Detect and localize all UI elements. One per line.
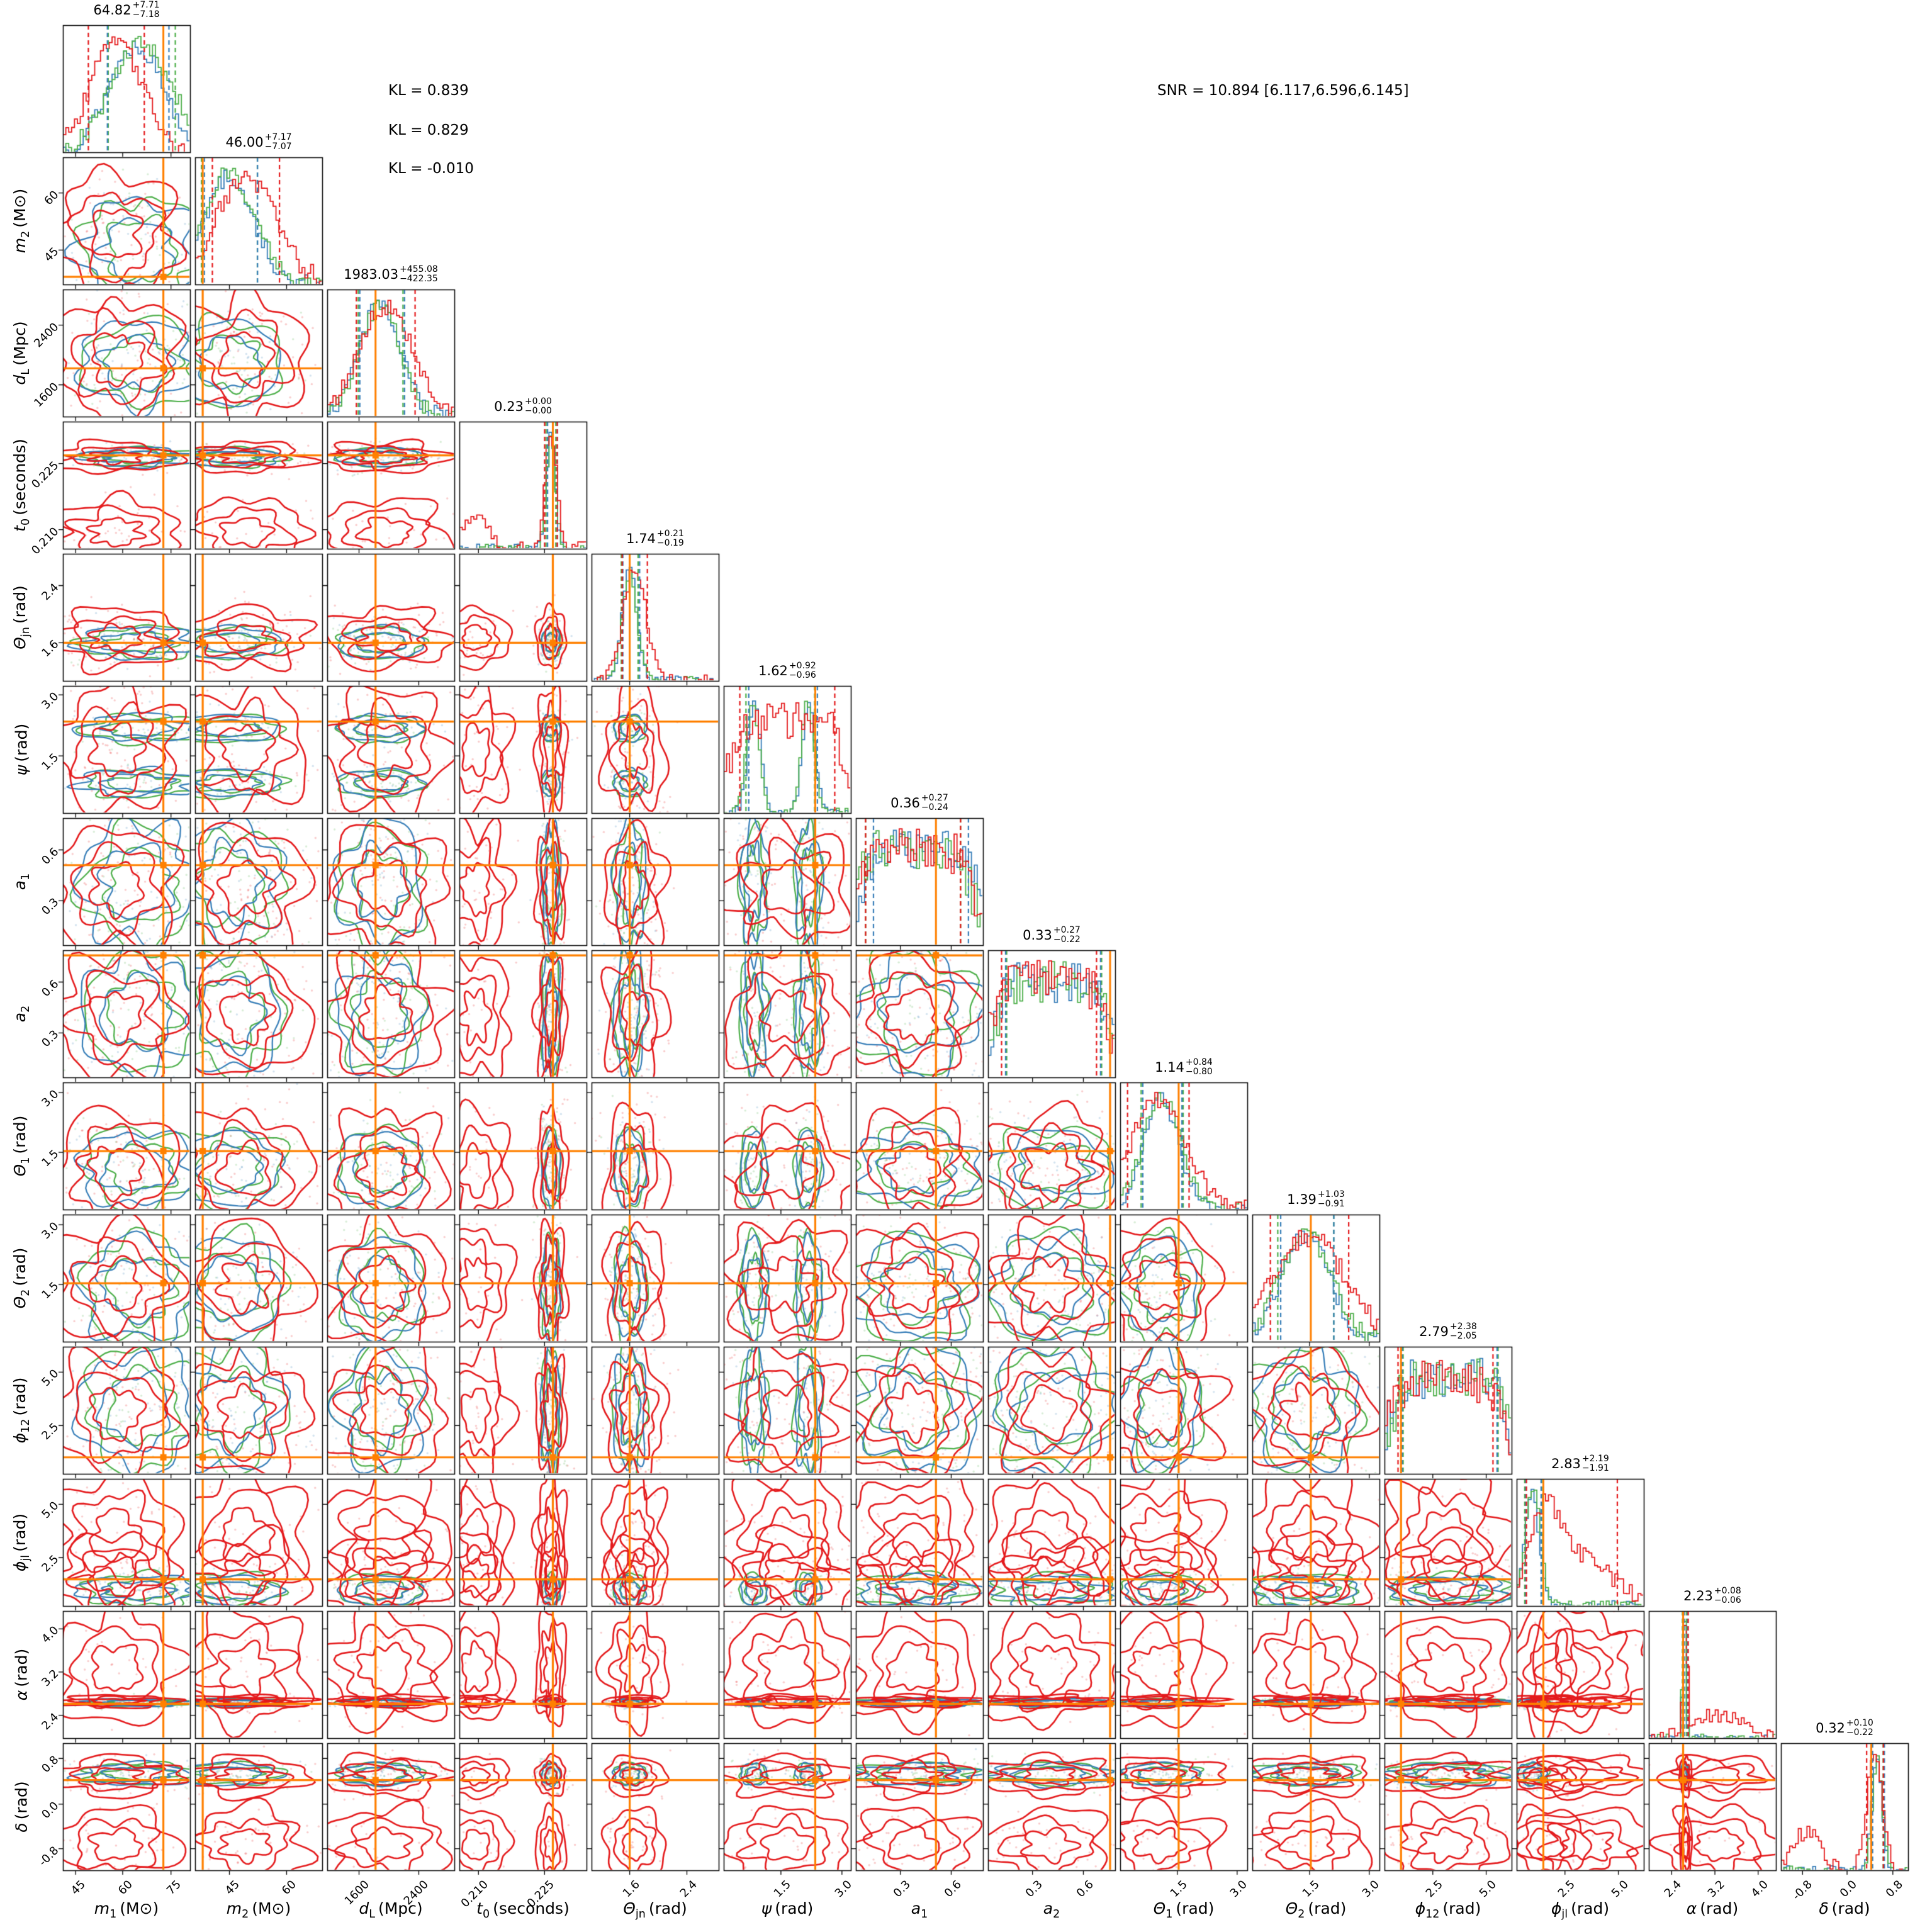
x-axis-label-psi: ψ (rad) (761, 1899, 813, 1918)
corner-plot-figure: KL = 0.839 KL = 0.829 KL = -0.010 SNR = … (0, 0, 1932, 1932)
y-axis-label-dL: dL (Mpc) (11, 321, 32, 385)
title-errors: +0.27−0.22 (1053, 926, 1081, 945)
title-plus-error: +2.38 (1450, 1322, 1477, 1332)
diag-title-phi_jl: 2.83+2.19−1.91 (1551, 1456, 1609, 1473)
title-median: 2.79 (1419, 1324, 1449, 1339)
y-axis-label-a2: a2 (11, 1006, 32, 1022)
diag-title-psi: 1.62+0.92−0.96 (758, 663, 816, 680)
y-axis-label-psi: ψ (rad) (13, 724, 31, 775)
title-minus-error: −0.22 (1846, 1728, 1873, 1738)
x-axis-label-delta: δ (rad) (1819, 1899, 1870, 1918)
title-median: 0.32 (1816, 1721, 1845, 1736)
x-axis-label-a2: a2 (1043, 1899, 1060, 1921)
title-minus-error: −0.91 (1318, 1199, 1345, 1209)
title-errors: +0.10−0.22 (1846, 1719, 1873, 1738)
x-axis-label-m2: m2 (M⊙) (227, 1899, 291, 1921)
x-axis-label-m1: m1 (M⊙) (94, 1899, 159, 1921)
x-axis-label-phi_12: ϕ12 (rad) (1415, 1899, 1481, 1921)
title-errors: +0.92−0.96 (789, 661, 816, 680)
kl-annotation-2: KL = -0.010 (388, 160, 474, 177)
title-errors: +7.17−7.07 (265, 133, 292, 152)
title-minus-error: −0.96 (789, 671, 816, 680)
diag-title-dL: 1983.03+455.08−422.35 (344, 267, 438, 284)
title-median: 46.00 (225, 135, 263, 150)
title-errors: +0.08−0.06 (1714, 1587, 1741, 1605)
diag-title-t0: 0.23+0.00−0.00 (494, 399, 552, 416)
title-plus-error: +0.10 (1846, 1719, 1873, 1728)
title-plus-error: +455.08 (400, 265, 438, 274)
y-axis-label-theta_2: Θ2 (rad) (11, 1248, 32, 1309)
y-axis-label-alpha: α (rad) (13, 1649, 31, 1700)
x-axis-label-phi_jl: ϕjl (rad) (1551, 1899, 1609, 1921)
x-axis-label-alpha: α (rad) (1687, 1899, 1738, 1918)
x-axis-label-theta_1: Θ1 (rad) (1154, 1899, 1215, 1921)
title-minus-error: −1.91 (1582, 1464, 1609, 1473)
diag-title-theta_jn: 1.74+0.21−0.19 (626, 531, 684, 548)
title-median: 0.33 (1023, 928, 1052, 943)
y-axis-label-phi_jl: ϕjl (rad) (11, 1514, 32, 1571)
title-plus-error: +0.27 (921, 794, 948, 803)
title-plus-error: +2.19 (1582, 1454, 1609, 1464)
y-axis-label-t0: t0 (seconds) (11, 439, 32, 532)
kl-annotation-0: KL = 0.839 (388, 82, 469, 99)
x-axis-label-theta_2: Θ2 (rad) (1286, 1899, 1347, 1921)
title-plus-error: +0.21 (657, 529, 684, 539)
title-minus-error: −422.35 (400, 274, 438, 284)
diag-title-theta_2: 1.39+1.03−0.91 (1287, 1192, 1345, 1209)
title-median: 0.36 (890, 795, 920, 811)
x-axis-label-theta_jn: Θjn (rad) (623, 1899, 687, 1921)
title-median: 1983.03 (344, 267, 398, 282)
diag-title-alpha: 2.23+0.08−0.06 (1683, 1588, 1741, 1605)
title-plus-error: +7.17 (265, 133, 292, 142)
diag-title-a1: 0.36+0.27−0.24 (890, 795, 948, 812)
y-axis-label-delta: δ (rad) (13, 1781, 31, 1832)
title-errors: +2.38−2.05 (1450, 1322, 1477, 1341)
diag-title-m2: 46.00+7.17−7.07 (225, 135, 291, 152)
y-axis-label-theta_jn: Θjn (rad) (11, 585, 32, 649)
diag-title-theta_1: 1.14+0.84−0.80 (1155, 1060, 1213, 1077)
diag-title-m1: 64.82+7.71−7.18 (93, 3, 159, 20)
title-minus-error: −0.00 (525, 407, 552, 416)
title-plus-error: +0.84 (1186, 1058, 1213, 1067)
title-median: 64.82 (93, 3, 131, 18)
title-errors: +1.03−0.91 (1318, 1190, 1345, 1209)
title-errors: +0.00−0.00 (525, 397, 552, 416)
title-median: 0.23 (494, 399, 524, 414)
title-median: 1.62 (758, 663, 788, 678)
y-axis-label-a1: a1 (11, 873, 32, 890)
y-axis-label-m2: m2 (M⊙) (11, 189, 32, 254)
title-errors: +0.84−0.80 (1186, 1058, 1213, 1077)
title-minus-error: −0.80 (1186, 1067, 1213, 1077)
title-minus-error: −0.06 (1714, 1596, 1741, 1605)
title-plus-error: +0.92 (789, 661, 816, 671)
title-minus-error: −7.07 (265, 142, 292, 152)
title-plus-error: +7.71 (133, 1, 160, 10)
diag-title-delta: 0.32+0.10−0.22 (1816, 1721, 1873, 1738)
title-minus-error: −7.18 (133, 10, 160, 20)
corner-plot-canvas (0, 0, 1932, 1932)
diag-title-phi_12: 2.79+2.38−2.05 (1419, 1324, 1477, 1341)
title-errors: +0.21−0.19 (657, 529, 684, 548)
title-plus-error: +0.08 (1714, 1587, 1741, 1596)
title-plus-error: +0.27 (1053, 926, 1081, 935)
title-minus-error: −2.05 (1450, 1332, 1477, 1341)
title-errors: +455.08−422.35 (400, 265, 438, 284)
title-errors: +7.71−7.18 (133, 1, 160, 20)
title-median: 1.74 (626, 531, 656, 546)
y-axis-label-phi_12: ϕ12 (rad) (11, 1378, 32, 1444)
title-median: 2.83 (1551, 1456, 1581, 1471)
title-errors: +2.19−1.91 (1582, 1454, 1609, 1473)
title-plus-error: +0.00 (525, 397, 552, 407)
title-minus-error: −0.22 (1053, 935, 1081, 945)
x-axis-label-t0: t0 (seconds) (476, 1899, 570, 1921)
title-median: 1.14 (1155, 1060, 1184, 1075)
kl-annotation-1: KL = 0.829 (388, 122, 469, 138)
title-minus-error: −0.24 (921, 803, 948, 812)
diag-title-a2: 0.33+0.27−0.22 (1023, 928, 1081, 945)
title-errors: +0.27−0.24 (921, 794, 948, 812)
y-axis-label-theta_1: Θ1 (rad) (11, 1116, 32, 1177)
x-axis-label-a1: a1 (911, 1899, 928, 1921)
snr-annotation: SNR = 10.894 [6.117,6.596,6.145] (1157, 82, 1409, 99)
title-median: 1.39 (1287, 1192, 1317, 1207)
title-plus-error: +1.03 (1318, 1190, 1345, 1199)
title-median: 2.23 (1683, 1588, 1713, 1603)
title-minus-error: −0.19 (657, 539, 684, 548)
